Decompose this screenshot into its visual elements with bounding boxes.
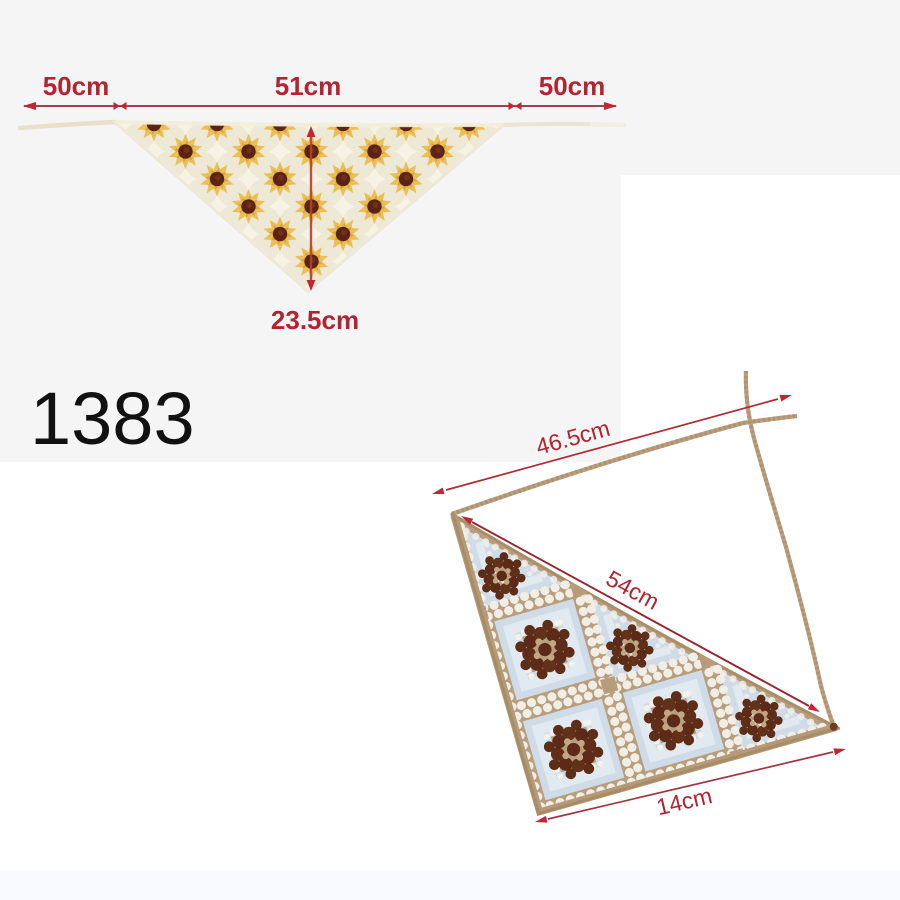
svg-text:1383: 1383	[30, 377, 195, 460]
svg-text:50cm: 50cm	[539, 71, 606, 101]
svg-text:14cm: 14cm	[654, 782, 715, 820]
svg-text:50cm: 50cm	[43, 71, 110, 101]
svg-text:23.5cm: 23.5cm	[271, 305, 359, 335]
svg-text:51cm: 51cm	[275, 71, 342, 101]
